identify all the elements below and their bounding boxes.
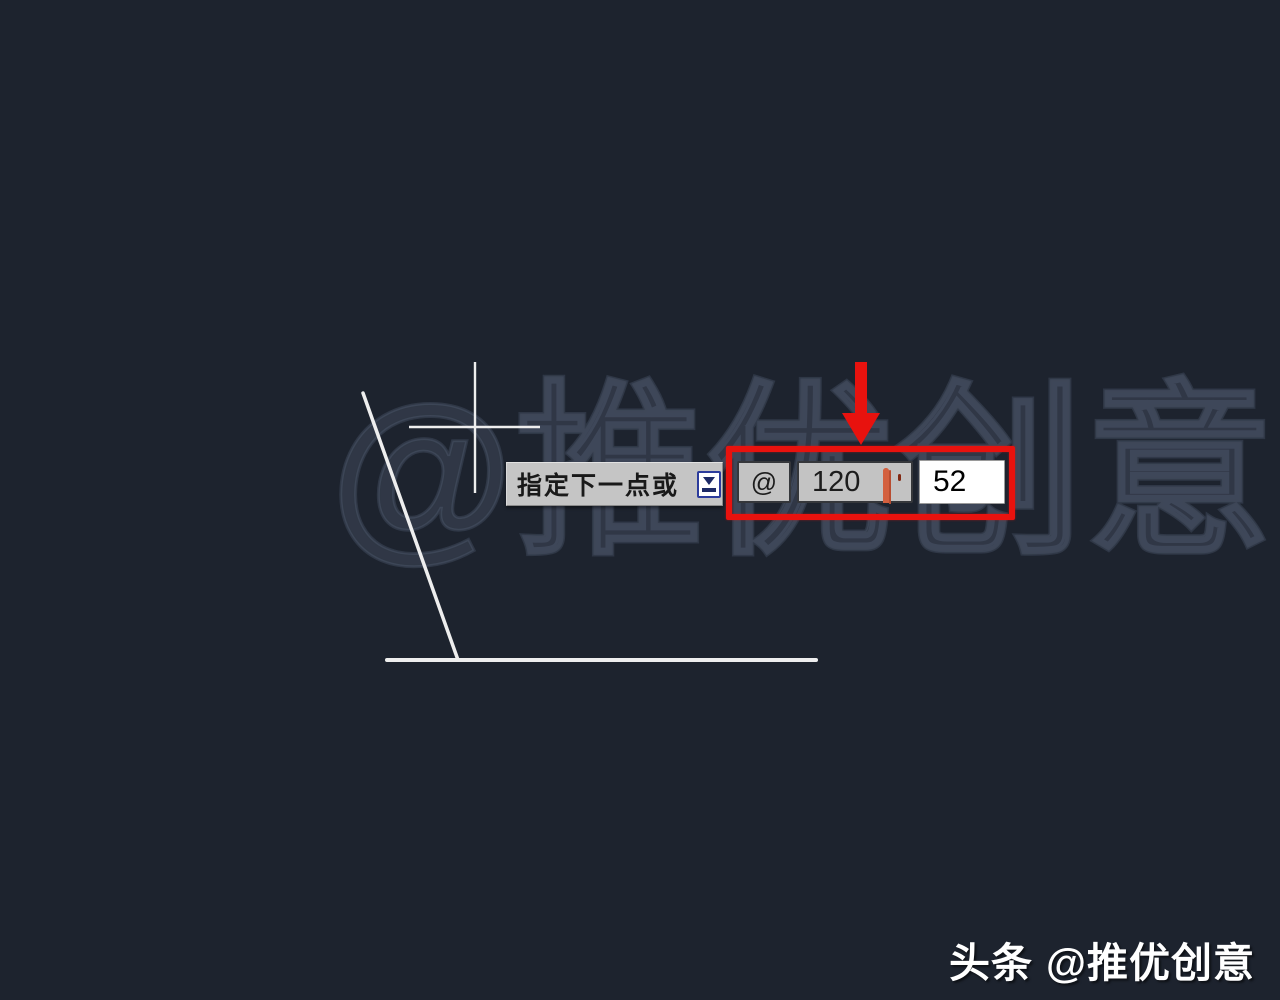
drawing-canvas[interactable]: @推优创意 指定下一点或 @ 120 头条 @推优创意 <box>0 0 1280 1000</box>
red-arrow-icon <box>842 362 880 445</box>
credit-handle: @推优创意 <box>1046 929 1255 989</box>
credit-source: 头条 <box>949 929 1033 989</box>
credit-line: 头条 @推优创意 <box>949 929 1255 989</box>
